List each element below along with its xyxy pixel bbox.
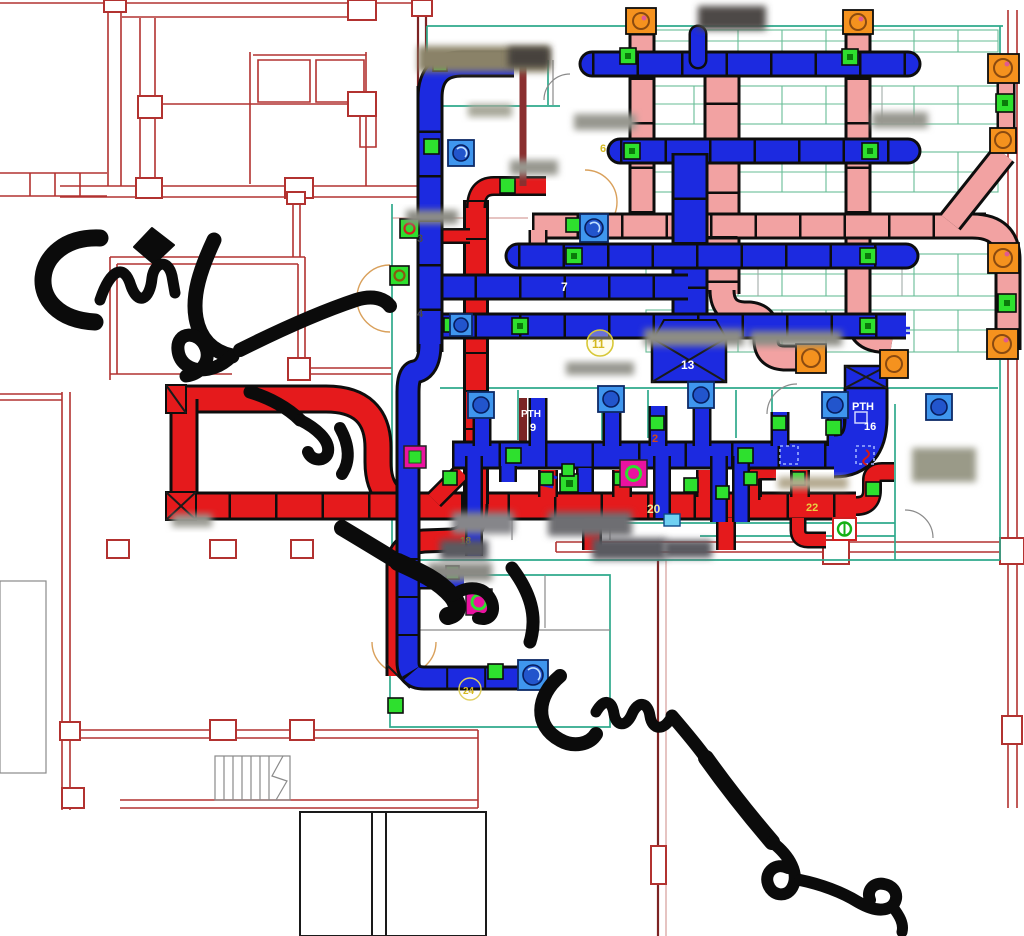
diffuser	[566, 248, 582, 264]
diffuser	[500, 178, 515, 193]
return-duct-pink	[532, 33, 1008, 358]
fan-box	[450, 314, 472, 336]
duct-label-2: 2	[652, 433, 658, 445]
diffuser	[860, 318, 876, 334]
duct-label-24: 24	[463, 686, 475, 697]
duct-label-9: 9	[530, 422, 536, 434]
diffuser	[842, 49, 858, 65]
duct-label-6: 6	[600, 143, 606, 155]
fire-damper	[990, 128, 1016, 153]
fan-box	[580, 214, 608, 242]
diffuser-ring	[390, 266, 409, 285]
diffuser	[684, 478, 698, 492]
fan-box	[468, 392, 494, 418]
diffuser	[716, 486, 729, 499]
magenta-damper	[620, 460, 647, 487]
diffuser	[772, 416, 786, 430]
fan-box	[688, 382, 714, 408]
hvac-duct-plan: مهندس امير سلماني	[0, 0, 1024, 936]
diffuser	[738, 448, 753, 463]
diffuser	[540, 472, 553, 485]
duct-label-4: 4	[417, 308, 424, 320]
diffuser	[860, 248, 876, 264]
fire-damper	[626, 8, 656, 34]
fire-damper	[880, 350, 908, 378]
diffuser	[826, 420, 841, 435]
diffuser	[862, 143, 878, 159]
magenta-damper	[404, 446, 426, 468]
duct-label-3: 3	[417, 233, 423, 245]
elevator-shaft	[300, 812, 486, 936]
diffuser	[624, 143, 640, 159]
diffuser	[388, 698, 403, 713]
duct-label-pth9: PTH	[521, 409, 541, 420]
duct-label-pth16: PTH	[852, 401, 874, 413]
diffuser	[424, 139, 439, 154]
outlet-cyan	[664, 514, 680, 526]
fan-box	[448, 140, 474, 166]
diffuser	[562, 464, 574, 476]
hvac-plan-svg: 3 4 6 7 PTH 9 11 13 PTH 16 18 20 22 24 2	[0, 0, 1024, 936]
duct-label-11: 11	[592, 337, 605, 351]
staircase	[215, 756, 290, 800]
diffuser	[996, 94, 1014, 112]
duct-label-13: 13	[681, 358, 695, 372]
diffuser	[506, 448, 521, 463]
diffuser	[512, 318, 528, 334]
fan-box	[926, 394, 952, 420]
diffuser	[866, 482, 880, 496]
diffuser	[744, 472, 757, 485]
duct-label-7: 7	[561, 280, 568, 294]
fire-damper	[988, 54, 1019, 83]
control-box	[833, 518, 856, 540]
fire-damper	[988, 243, 1019, 273]
duct-label-16: 16	[864, 421, 876, 433]
diffuser	[620, 48, 636, 64]
diffuser	[443, 471, 457, 485]
fire-damper	[987, 329, 1018, 359]
diffuser	[488, 664, 503, 679]
diffuser	[650, 416, 664, 430]
fan-box	[822, 392, 848, 418]
diffuser	[998, 294, 1016, 312]
duct-label-22: 22	[806, 502, 818, 514]
fire-damper	[796, 344, 826, 373]
fire-damper	[843, 10, 873, 34]
duct-label-20: 20	[647, 502, 661, 516]
fan-box	[598, 386, 624, 412]
diffuser	[566, 218, 580, 232]
